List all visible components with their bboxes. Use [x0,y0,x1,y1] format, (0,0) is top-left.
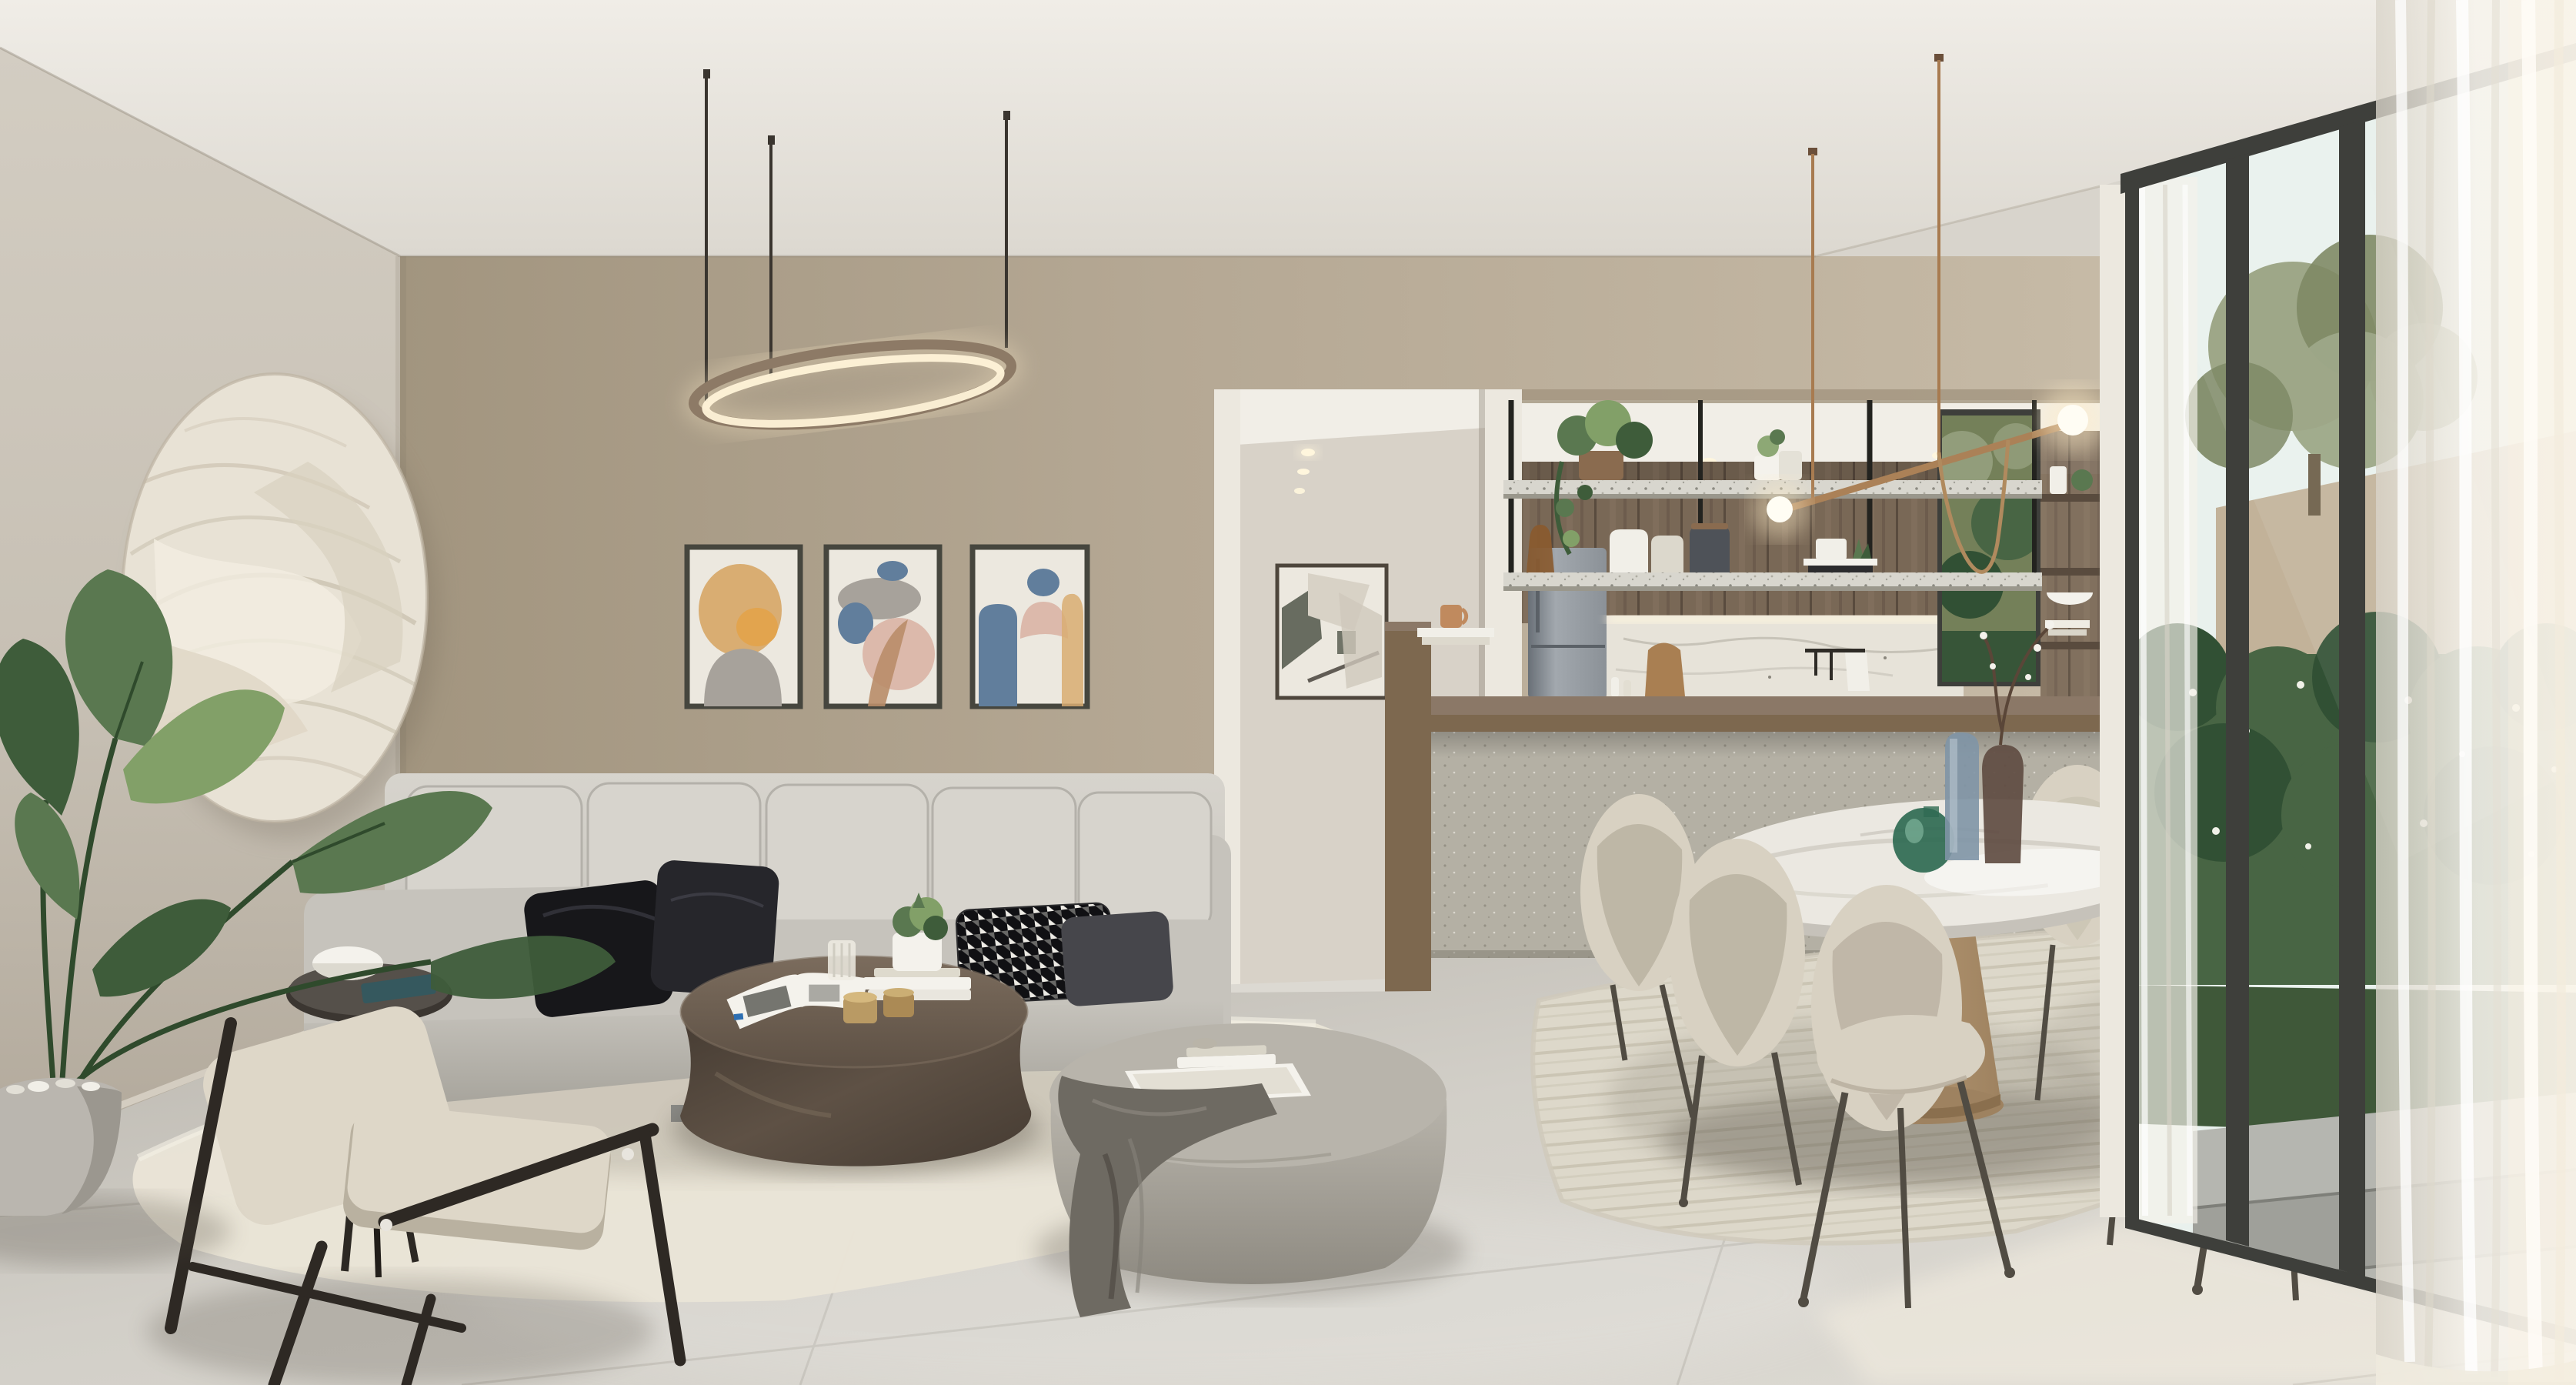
framed-print-3 [973,547,1087,706]
framed-print-1 [687,547,800,706]
wood-countertop [1388,696,2100,715]
sheer-curtain-right [2376,0,2576,1385]
framed-print-2 [826,547,939,706]
book-stack [863,968,971,1000]
round-fabric-pouf [1035,1023,1466,1317]
charcoal-pillow [1060,910,1174,1006]
scene-canvas [0,0,2576,1385]
floor-to-ceiling-window [2100,0,2576,1385]
glass-cup [828,940,856,980]
interior-render [0,0,2576,1385]
right-open-shelving [2040,431,2100,699]
utensil-rail [1805,649,1865,652]
gallery-of-three-abstract-prints [687,547,1087,706]
hallway-abstract-art [1277,566,1386,698]
cutting-board [1645,643,1685,697]
window-pillar [2100,185,2126,1217]
hand-towel [1845,652,1870,691]
coffee-mug [1440,605,1462,628]
